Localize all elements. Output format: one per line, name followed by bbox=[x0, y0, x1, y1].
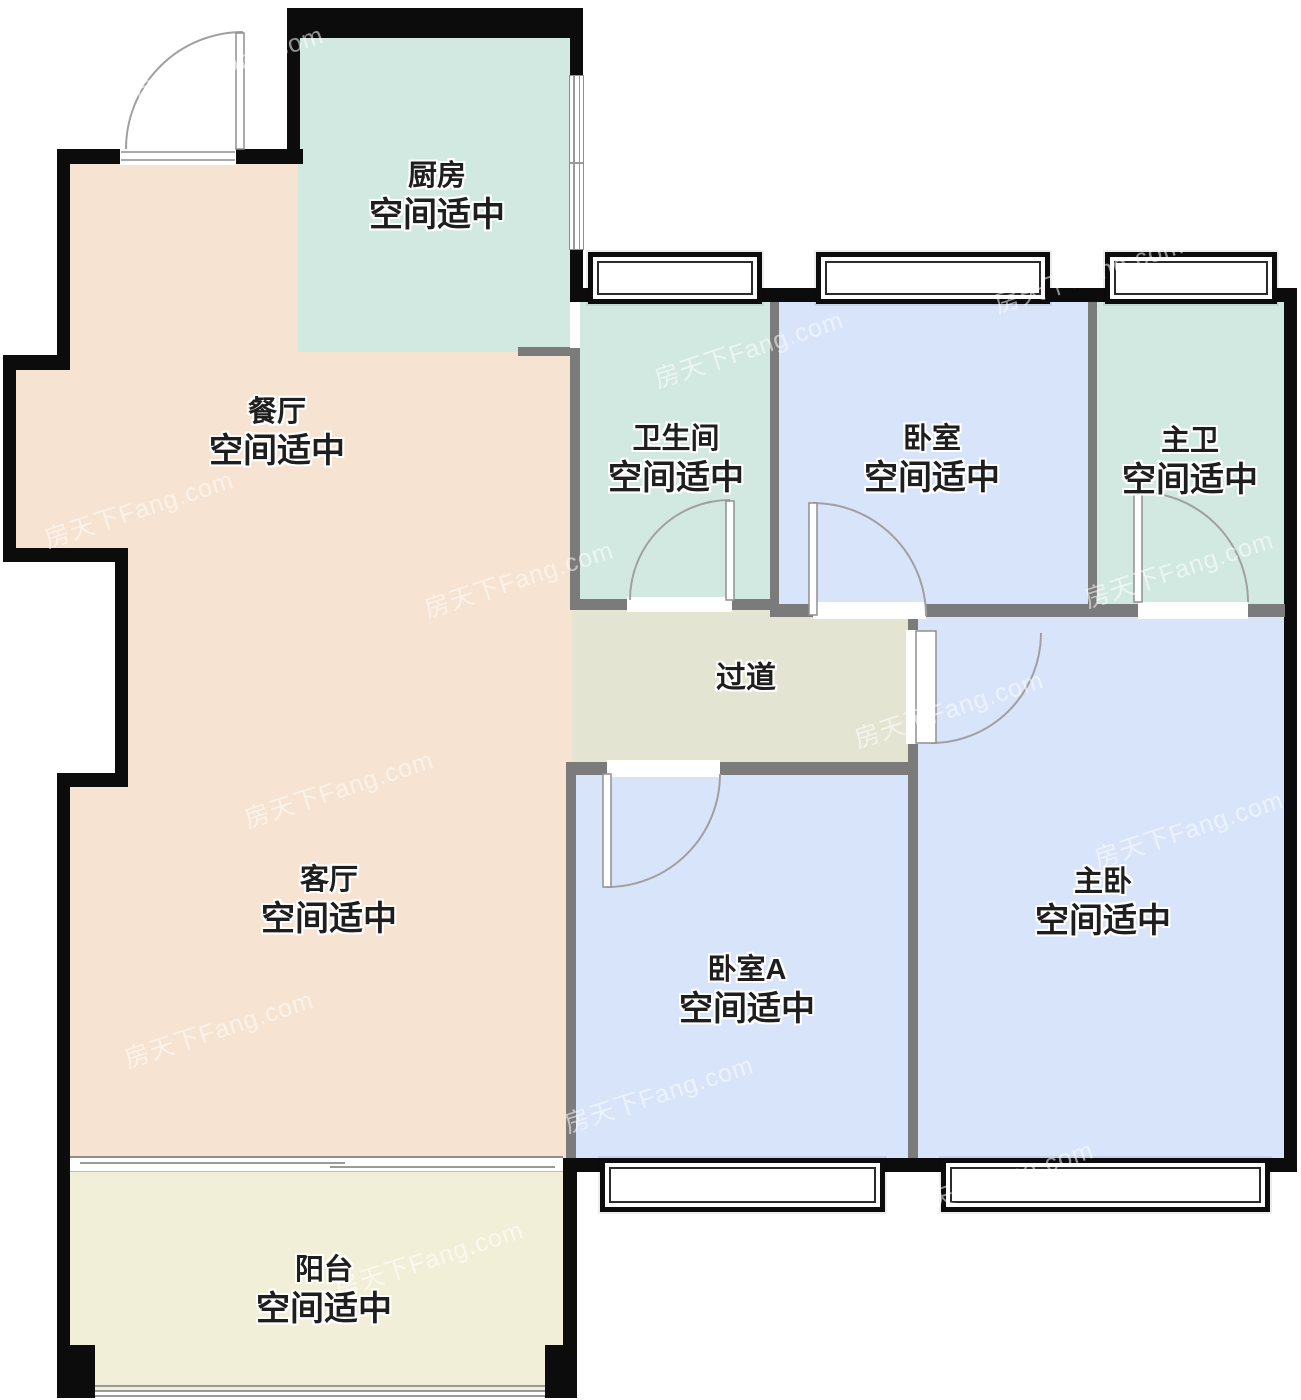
room-label-living: 客厅 空间适中 bbox=[261, 862, 397, 940]
exterior-wall bbox=[57, 149, 70, 370]
exterior-wall bbox=[3, 355, 16, 562]
interior-wall bbox=[518, 347, 570, 356]
balcony-sliding-door bbox=[70, 1156, 563, 1172]
room-size-note: 空间适中 bbox=[369, 195, 505, 236]
exterior-wall bbox=[1050, 288, 1105, 302]
room-size-note: 空间适中 bbox=[864, 458, 1000, 499]
floor-plan: 房天下Fang.com 房天下Fang.com 房天下Fang.com 房天下F… bbox=[0, 0, 1301, 1400]
room-label-bedroom: 卧室 空间适中 bbox=[864, 421, 1000, 499]
room-label-bathroom: 卫生间 空间适中 bbox=[608, 421, 744, 499]
bedroom-a-bay-window bbox=[600, 1158, 885, 1212]
exterior-wall bbox=[1284, 288, 1297, 1172]
balcony-railing-line bbox=[95, 1385, 545, 1387]
bathroom-bay-window bbox=[588, 252, 762, 304]
interior-wall bbox=[570, 348, 580, 608]
room-name: 餐厅 bbox=[209, 394, 345, 431]
room-label-dining: 餐厅 空间适中 bbox=[209, 394, 345, 472]
bedroom-bay-window bbox=[816, 252, 1050, 304]
exterior-wall bbox=[57, 773, 70, 1398]
kitchen-window bbox=[569, 75, 584, 250]
bedroom-door-opening bbox=[813, 602, 926, 619]
room-size-note: 空间适中 bbox=[679, 989, 815, 1030]
room-size-note: 空间适中 bbox=[209, 431, 345, 472]
balcony-railing-line bbox=[95, 1395, 545, 1397]
bathroom-door-opening bbox=[627, 597, 732, 612]
room-label-hallway: 过道 bbox=[716, 660, 776, 697]
master-bath-bay-window bbox=[1105, 252, 1277, 304]
balcony-railing-line bbox=[95, 1390, 545, 1392]
exterior-wall bbox=[1270, 1158, 1297, 1172]
room-name: 厨房 bbox=[369, 158, 505, 195]
exterior-wall bbox=[115, 548, 128, 787]
entrance-threshold-line bbox=[121, 151, 235, 153]
room-name: 卧室 bbox=[864, 421, 1000, 458]
room-name: 阳台 bbox=[256, 1252, 392, 1289]
room-name: 主卫 bbox=[1122, 423, 1258, 460]
exterior-wall bbox=[570, 288, 588, 302]
master-bedroom-bay-window bbox=[941, 1158, 1270, 1212]
room-label-balcony: 阳台 空间适中 bbox=[256, 1252, 392, 1330]
room-name: 卫生间 bbox=[608, 421, 744, 458]
room-size-note: 空间适中 bbox=[1122, 460, 1258, 501]
room-name: 卧室A bbox=[679, 952, 815, 989]
room-name: 主卧 bbox=[1035, 864, 1171, 901]
room-label-kitchen: 厨房 空间适中 bbox=[369, 158, 505, 236]
exterior-wall bbox=[570, 8, 583, 75]
entrance-threshold-line bbox=[121, 159, 235, 161]
exterior-wall bbox=[287, 8, 300, 162]
room-size-note: 空间适中 bbox=[256, 1289, 392, 1330]
exterior-wall bbox=[762, 288, 816, 302]
room-size-note: 空间适中 bbox=[608, 458, 744, 499]
master-bedroom-door-opening bbox=[906, 630, 920, 744]
room-label-master-bath: 主卫 空间适中 bbox=[1122, 423, 1258, 501]
room-label-master-bedroom: 主卧 空间适中 bbox=[1035, 864, 1171, 942]
entrance-door-leaf bbox=[236, 33, 244, 149]
room-label-bedroom-a: 卧室A 空间适中 bbox=[679, 952, 815, 1030]
room-size-note: 空间适中 bbox=[1035, 901, 1171, 942]
exterior-wall bbox=[3, 548, 128, 562]
interior-wall bbox=[566, 762, 576, 1158]
exterior-wall bbox=[885, 1158, 941, 1172]
room-name: 客厅 bbox=[261, 862, 397, 899]
room-size-note: 空间适中 bbox=[261, 899, 397, 940]
exterior-wall bbox=[287, 8, 583, 38]
room-name: 过道 bbox=[716, 660, 776, 697]
entrance-door-arc bbox=[126, 32, 243, 149]
interior-wall bbox=[770, 302, 779, 617]
balcony-corner-wall bbox=[57, 1345, 95, 1398]
interior-wall bbox=[1088, 302, 1097, 608]
master-bath-door-opening bbox=[1138, 602, 1248, 619]
exterior-wall bbox=[236, 149, 303, 164]
bedroom-a-door-opening bbox=[607, 760, 720, 777]
balcony-corner-wall bbox=[545, 1345, 577, 1398]
